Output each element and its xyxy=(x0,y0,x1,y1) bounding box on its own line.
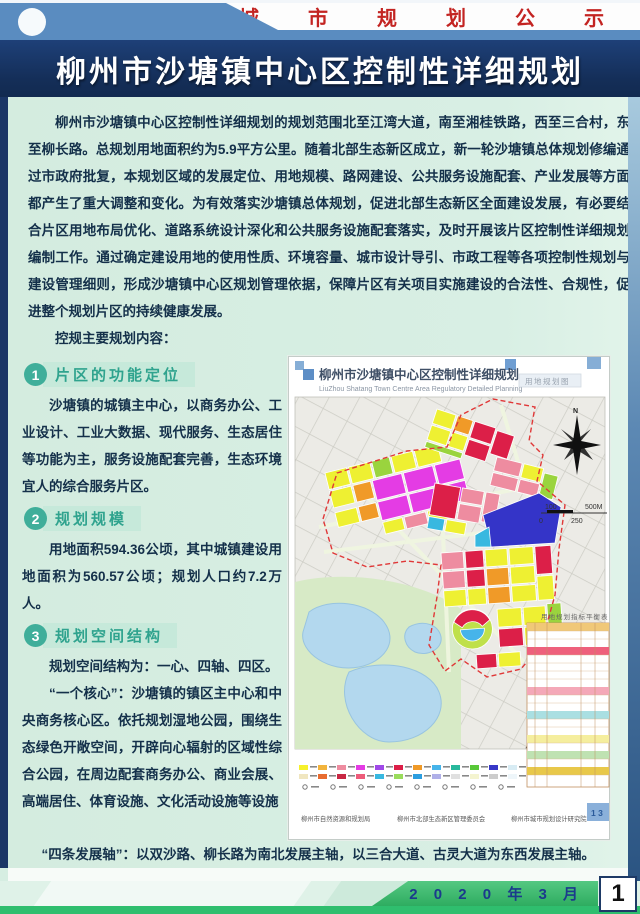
map-legend-swatches xyxy=(299,765,526,789)
section-1-title: 片区的功能定位 xyxy=(43,362,195,387)
planning-notice-page: 城 市 规 划 公 示 柳州市沙塘镇中心区控制性详细规划 柳州市沙塘镇中心区控制… xyxy=(0,0,640,914)
section-2-number: 2 xyxy=(24,507,47,530)
map-corner-label: 用地规划图 xyxy=(525,376,570,386)
section-2-body: 用地面积594.36公顷，其中城镇建设用地面积为560.57公顷；规划人口约7.… xyxy=(22,536,282,617)
scale-100: 100 xyxy=(545,504,557,511)
org-name: 柳州市城市规划设计研究院 xyxy=(511,814,587,823)
land-use-map-panel: 柳州市沙塘镇中心区控制性详细规划 LiuZhou Shatang Town Ce… xyxy=(288,356,610,840)
page-right-border xyxy=(628,97,640,914)
content-area: 柳州市沙塘镇中心区控制性详细规划的规划范围北至江湾大道，南至湘桂铁路，西至三合村… xyxy=(0,97,640,868)
page-number: 1 xyxy=(611,880,624,908)
org-name: 柳州市北部生态新区管理委员会 xyxy=(397,814,486,823)
bottom-green-strip xyxy=(0,906,640,914)
map-sheet-number: 1 3 xyxy=(591,808,603,818)
decor-circle xyxy=(18,8,46,36)
scale-250: 250 xyxy=(571,518,583,525)
section-3-body2: “一个核心”：沙塘镇的镇区主中心和中央商务核心区。依托规划湿地公园，围绕生态绿色… xyxy=(22,680,282,815)
decor-square xyxy=(295,361,304,370)
title-bar: 柳州市沙塘镇中心区控制性详细规划 xyxy=(0,40,640,97)
land-use-balance-table: 用地规划指标平衡表 xyxy=(527,612,609,787)
page-title: 柳州市沙塘镇中心区控制性详细规划 xyxy=(56,47,584,91)
top-banner: 城 市 规 划 公 示 xyxy=(0,0,640,40)
section-1-number: 1 xyxy=(24,363,47,386)
lead-in-line: 控规主要规划内容： xyxy=(20,325,636,354)
publish-date: 2 0 2 0 年 3 月 xyxy=(409,883,584,904)
footer-band: 2 0 2 0 年 3 月 xyxy=(0,881,640,906)
footer-white-strip xyxy=(8,868,628,881)
section-1-badge: 1 片区的功能定位 xyxy=(24,362,282,387)
north-label: N xyxy=(573,408,578,415)
section-3-title: 规划空间结构 xyxy=(43,623,177,648)
banner-ribbon: 城 市 规 划 公 示 xyxy=(226,3,640,30)
section-2-title: 规划规模 xyxy=(43,506,141,531)
date-band: 2 0 2 0 年 3 月 xyxy=(372,881,598,906)
axes-line: “四条发展轴”：以双沙路、柳长路为南北发展主轴，以三合大道、古灵大道为东西发展主… xyxy=(20,840,636,868)
section-2-badge: 2 规划规模 xyxy=(24,506,282,531)
map-column: 柳州市沙塘镇中心区控制性详细规划 LiuZhou Shatang Town Ce… xyxy=(288,356,610,840)
org-name: 柳州市自然资源和规划局 xyxy=(301,814,370,823)
two-column-region: 1 片区的功能定位 沙塘镇的城镇主中心，以商务办公、工业设计、工业大数据、现代服… xyxy=(20,356,636,840)
section-1-body: 沙塘镇的城镇主中心，以商务办公、工业设计、工业大数据、现代服务、生态居住等功能为… xyxy=(22,392,282,500)
decor-square xyxy=(587,357,601,369)
section-3-body: 规划空间结构为：一心、四轴、四区。 xyxy=(22,653,282,680)
intro-paragraph: 柳州市沙塘镇中心区控制性详细规划的规划范围北至江湾大道，南至湘桂铁路，西至三合村… xyxy=(20,107,636,325)
left-column: 1 片区的功能定位 沙塘镇的城镇主中心，以商务办公、工业设计、工业大数据、现代服… xyxy=(22,356,282,840)
page-number-box: 1 xyxy=(599,876,637,912)
section-3-number: 3 xyxy=(24,624,47,647)
decor-square xyxy=(303,369,314,380)
pond xyxy=(405,623,441,653)
map-subtitle: LiuZhou Shatang Town Centre Area Regulat… xyxy=(319,386,523,393)
section-3-badge: 3 规划空间结构 xyxy=(24,623,282,648)
banner-title: 城 市 规 划 公 示 xyxy=(239,2,626,31)
footer-decor-shard xyxy=(26,881,314,906)
scale-0: 0 xyxy=(539,518,543,525)
land-use-map: 柳州市沙塘镇中心区控制性详细规划 LiuZhou Shatang Town Ce… xyxy=(289,357,611,841)
balance-table-title: 用地规划指标平衡表 xyxy=(541,612,609,621)
map-organisations: 柳州市自然资源和规划局 柳州市北部生态新区管理委员会 柳州市城市规划设计研究院 xyxy=(301,814,587,823)
map-title: 柳州市沙塘镇中心区控制性详细规划 xyxy=(319,367,519,382)
scale-500m: 500M xyxy=(585,504,603,511)
